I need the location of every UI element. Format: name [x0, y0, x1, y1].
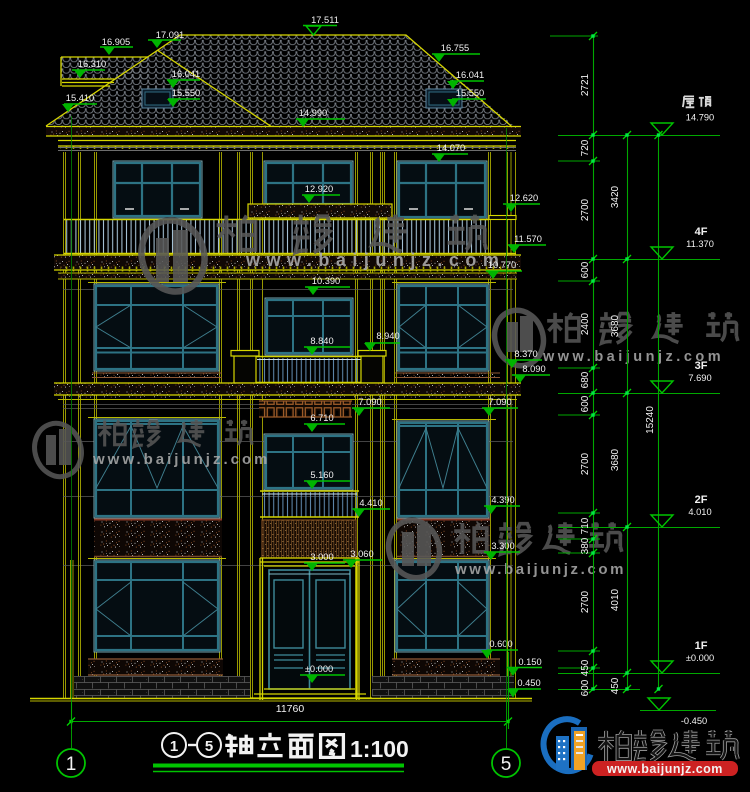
svg-text:-0.450: -0.450	[681, 716, 707, 726]
svg-text:16.041: 16.041	[172, 69, 200, 79]
svg-text:16.041: 16.041	[456, 70, 484, 80]
svg-text:4.390: 4.390	[491, 495, 514, 505]
svg-text:2F: 2F	[695, 494, 708, 506]
svg-text:11.370: 11.370	[686, 239, 714, 249]
svg-text:450: 450	[610, 677, 621, 694]
svg-text:1F: 1F	[695, 640, 708, 652]
svg-text:14.990: 14.990	[299, 108, 327, 118]
svg-text:3420: 3420	[610, 185, 621, 208]
svg-text:16.755: 16.755	[441, 43, 469, 53]
svg-text:16.905: 16.905	[102, 37, 130, 47]
svg-text:2700: 2700	[580, 590, 591, 613]
svg-text:0.150: 0.150	[518, 657, 541, 667]
svg-text:0.450: 0.450	[517, 678, 540, 688]
svg-text:3680: 3680	[610, 314, 621, 337]
svg-text:www.baijunjz.com: www.baijunjz.com	[454, 561, 626, 578]
svg-text:15.550: 15.550	[456, 88, 484, 98]
svg-text:8.940: 8.940	[376, 331, 399, 341]
svg-text:www.baijunjz.com: www.baijunjz.com	[92, 451, 270, 468]
svg-text:2700: 2700	[580, 452, 591, 475]
svg-text:4.410: 4.410	[359, 498, 382, 508]
svg-text:3680: 3680	[610, 448, 621, 471]
svg-text:8.370: 8.370	[514, 349, 537, 359]
svg-text:15.550: 15.550	[172, 88, 200, 98]
svg-text:3.300: 3.300	[491, 541, 514, 551]
svg-text:12.920: 12.920	[305, 184, 333, 194]
svg-text:680: 680	[580, 371, 591, 388]
svg-text:1: 1	[170, 738, 178, 755]
svg-text:7.090: 7.090	[358, 397, 381, 407]
svg-text:±0.000: ±0.000	[305, 664, 333, 674]
svg-text:14.790: 14.790	[686, 113, 714, 123]
svg-text:6.710: 6.710	[310, 413, 333, 423]
svg-text:10.770: 10.770	[488, 260, 516, 270]
svg-text:17.511: 17.511	[311, 15, 339, 25]
svg-text:600: 600	[580, 261, 591, 278]
svg-text:14.070: 14.070	[437, 143, 465, 153]
svg-text:4F: 4F	[695, 226, 708, 238]
svg-text:2700: 2700	[580, 198, 591, 221]
svg-text:11.570: 11.570	[514, 234, 542, 244]
svg-text:1: 1	[66, 754, 77, 775]
svg-text:3.000: 3.000	[310, 552, 333, 562]
svg-text:7.090: 7.090	[488, 397, 511, 407]
svg-text:380: 380	[580, 537, 591, 554]
svg-text:3F: 3F	[695, 360, 708, 372]
svg-text:15.410: 15.410	[66, 93, 94, 103]
svg-text:2400: 2400	[580, 312, 591, 335]
svg-text:600: 600	[580, 395, 591, 412]
svg-text:www.baijunjz.com: www.baijunjz.com	[245, 250, 505, 270]
svg-text:www.baijunjz.com: www.baijunjz.com	[606, 762, 723, 776]
svg-text:4010: 4010	[610, 588, 621, 611]
svg-text:2721: 2721	[580, 73, 591, 96]
svg-text:450: 450	[580, 659, 591, 676]
svg-text:12.620: 12.620	[510, 193, 538, 203]
svg-text:±0.000: ±0.000	[686, 653, 714, 663]
svg-text:8.090: 8.090	[522, 364, 545, 374]
svg-text:5: 5	[501, 754, 512, 775]
svg-text:4.010: 4.010	[688, 507, 711, 517]
svg-text:710: 710	[580, 517, 591, 534]
svg-text:11760: 11760	[276, 703, 305, 715]
svg-text:600: 600	[580, 679, 591, 696]
svg-text:7.690: 7.690	[688, 373, 711, 383]
svg-text:0.600: 0.600	[489, 639, 512, 649]
svg-text:720: 720	[580, 139, 591, 156]
svg-text:17.091: 17.091	[156, 30, 184, 40]
svg-text:5: 5	[205, 738, 213, 755]
svg-text:10.390: 10.390	[312, 276, 340, 286]
svg-text:5.160: 5.160	[310, 470, 333, 480]
svg-text:3.060: 3.060	[350, 549, 373, 559]
svg-text:16.310: 16.310	[78, 59, 106, 69]
svg-text:8.840: 8.840	[310, 336, 333, 346]
svg-text:1:100: 1:100	[350, 736, 409, 762]
svg-text:15240: 15240	[645, 406, 656, 434]
